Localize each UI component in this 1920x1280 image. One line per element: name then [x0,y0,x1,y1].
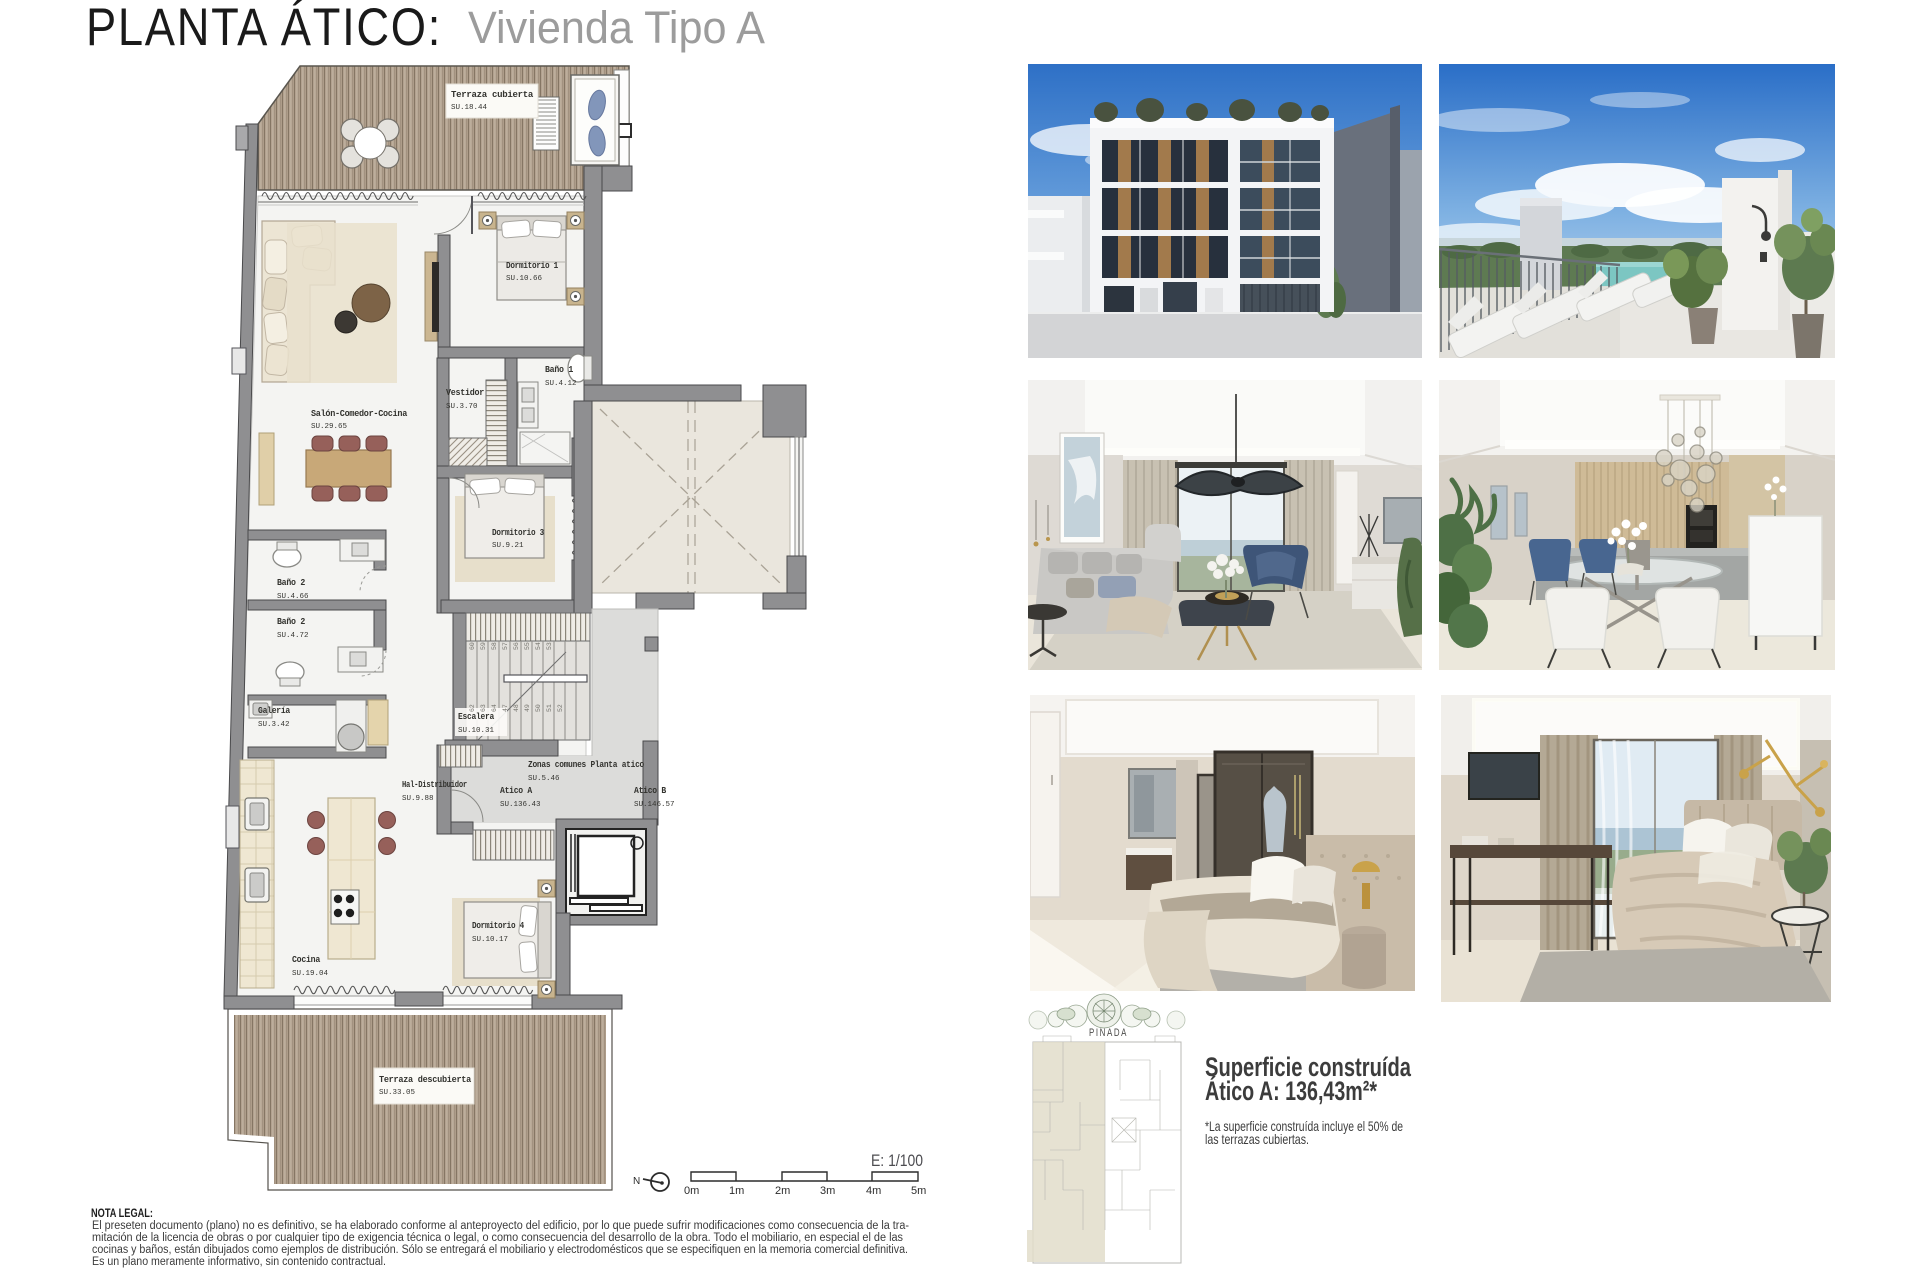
svg-text:N: N [633,1176,640,1187]
svg-text:SU.19.04: SU.19.04 [292,970,329,978]
svg-text:52: 52 [557,704,564,712]
svg-text:SU.3.70: SU.3.70 [446,403,478,411]
svg-text:64: 64 [491,704,498,712]
svg-text:4m: 4m [866,1185,881,1197]
svg-text:Dormitorio 3: Dormitorio 3 [492,528,544,538]
svg-text:SU.9.88: SU.9.88 [402,795,434,803]
svg-text:SU.5.46: SU.5.46 [528,775,560,783]
svg-text:Atico A: Atico A [500,786,533,796]
svg-text:Es un plano meramente informat: Es un plano meramente informativo, sin c… [92,1256,386,1268]
svg-text:PINADA: PINADA [1089,1027,1128,1039]
svg-text:las terrazas cubiertas.: las terrazas cubiertas. [1205,1131,1309,1147]
svg-text:Vivienda Tipo A: Vivienda Tipo A [468,2,765,53]
svg-text:Dormitorio 1: Dormitorio 1 [506,261,559,271]
svg-text:SU.33.05: SU.33.05 [379,1089,416,1097]
svg-text:60: 60 [469,642,476,650]
svg-text:SU.18.44: SU.18.44 [451,104,488,112]
svg-text:47: 47 [502,704,509,712]
svg-text:Terraza descubierta: Terraza descubierta [379,1075,472,1085]
svg-text:Baño 2: Baño 2 [277,617,305,627]
svg-text:56: 56 [513,642,520,650]
svg-text:SU.146.57: SU.146.57 [634,801,675,809]
svg-text:Ático A: 136,43m²*: Ático A: 136,43m²* [1205,1075,1377,1106]
svg-text:55: 55 [524,642,531,650]
svg-text:E: 1/100: E: 1/100 [871,1151,923,1170]
svg-text:63: 63 [480,704,487,712]
svg-text:SU.4.66: SU.4.66 [277,593,309,601]
svg-text:Galería: Galería [258,706,291,716]
svg-text:SU.10.17: SU.10.17 [472,936,508,944]
svg-text:SU.10.66: SU.10.66 [506,275,543,283]
svg-text:50: 50 [535,704,542,712]
svg-text:51: 51 [546,704,553,712]
svg-text:48: 48 [513,704,520,712]
svg-text:Escalera: Escalera [458,712,495,722]
svg-text:5m: 5m [911,1185,926,1197]
svg-text:54: 54 [535,642,542,650]
svg-text:49: 49 [524,704,531,712]
svg-text:Atico B: Atico B [634,786,667,796]
svg-text:58: 58 [491,642,498,650]
svg-text:Zonas comunes Planta atico: Zonas comunes Planta atico [528,760,644,770]
svg-text:59: 59 [480,642,487,650]
svg-text:Cocina: Cocina [292,955,321,965]
svg-text:2m: 2m [775,1185,790,1197]
svg-text:Salón-Comedor-Cocina: Salón-Comedor-Cocina [311,409,408,419]
svg-text:1m: 1m [729,1185,744,1197]
svg-text:NOTA LEGAL:: NOTA LEGAL: [91,1206,153,1220]
svg-text:SU.29.65: SU.29.65 [311,423,348,431]
svg-text:Terraza cubierta: Terraza cubierta [451,90,534,100]
svg-text:0m: 0m [684,1185,699,1197]
svg-text:SU.9.21: SU.9.21 [492,542,524,550]
svg-text:62: 62 [469,704,476,712]
svg-text:SU.10.31: SU.10.31 [458,727,495,735]
svg-text:El preseten documento (plano): El preseten documento (plano) no es defi… [92,1220,909,1232]
svg-text:Baño 2: Baño 2 [277,578,305,588]
svg-text:Vestidor: Vestidor [446,388,484,398]
svg-text:cocinas y baños, están dibujad: cocinas y baños, están dibujados como ej… [92,1244,908,1256]
svg-text:Hal-Distribuidor: Hal-Distribuidor [402,780,467,790]
svg-text:SU.4.12: SU.4.12 [545,380,577,388]
svg-text:SU.136.43: SU.136.43 [500,801,541,809]
svg-text:Baño 1: Baño 1 [545,365,574,375]
svg-text:53: 53 [546,642,553,650]
svg-text:3m: 3m [820,1185,835,1197]
svg-text:SU.4.72: SU.4.72 [277,632,309,640]
svg-text:57: 57 [502,642,509,650]
svg-text:mitación de la licencia de obr: mitación de la licencia de obras o por c… [92,1232,903,1244]
svg-text:SU.3.42: SU.3.42 [258,721,290,729]
svg-text:PLANTA ÁTICO:: PLANTA ÁTICO: [86,0,442,57]
svg-text:Dormitorio 4: Dormitorio 4 [472,921,525,931]
